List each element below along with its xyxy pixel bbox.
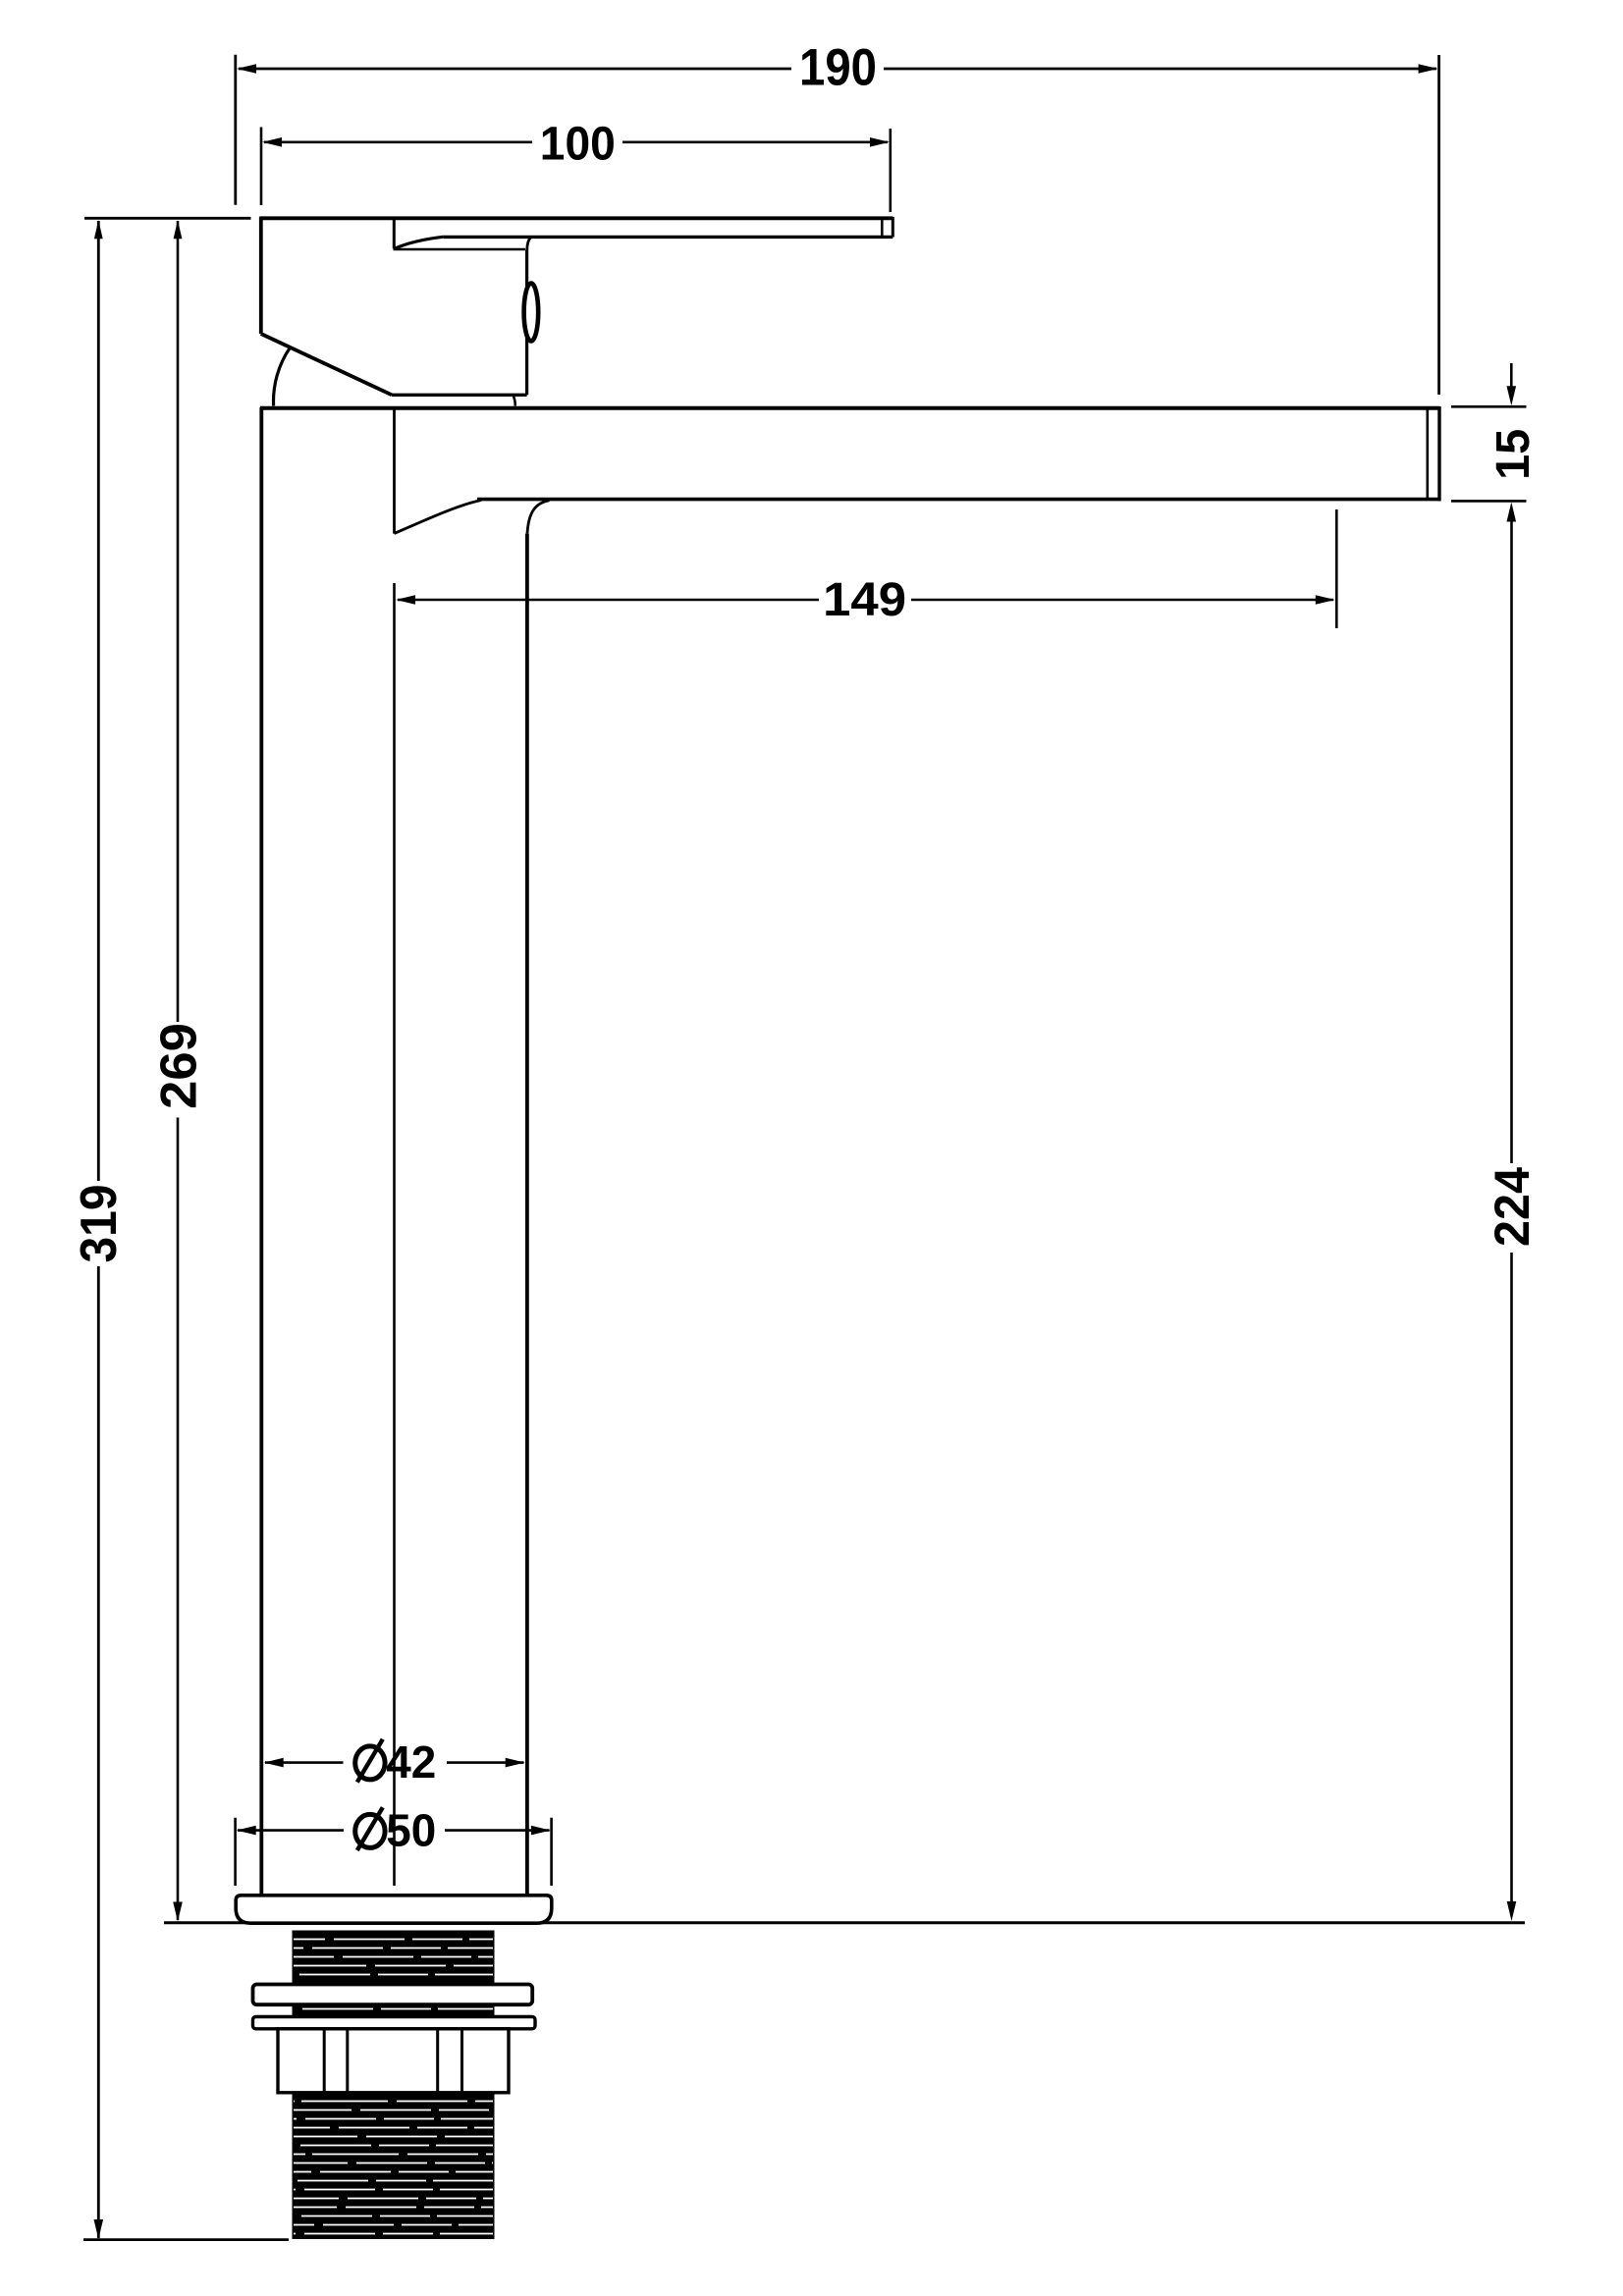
svg-text:149: 149 (823, 574, 906, 626)
svg-text:269: 269 (150, 1023, 207, 1109)
svg-text:42: 42 (386, 1736, 436, 1788)
svg-text:15: 15 (1488, 429, 1540, 480)
svg-text:319: 319 (71, 1185, 128, 1263)
svg-text:50: 50 (386, 1805, 436, 1856)
svg-text:100: 100 (540, 119, 616, 171)
svg-text:190: 190 (799, 39, 877, 97)
svg-text:224: 224 (1485, 1167, 1540, 1247)
